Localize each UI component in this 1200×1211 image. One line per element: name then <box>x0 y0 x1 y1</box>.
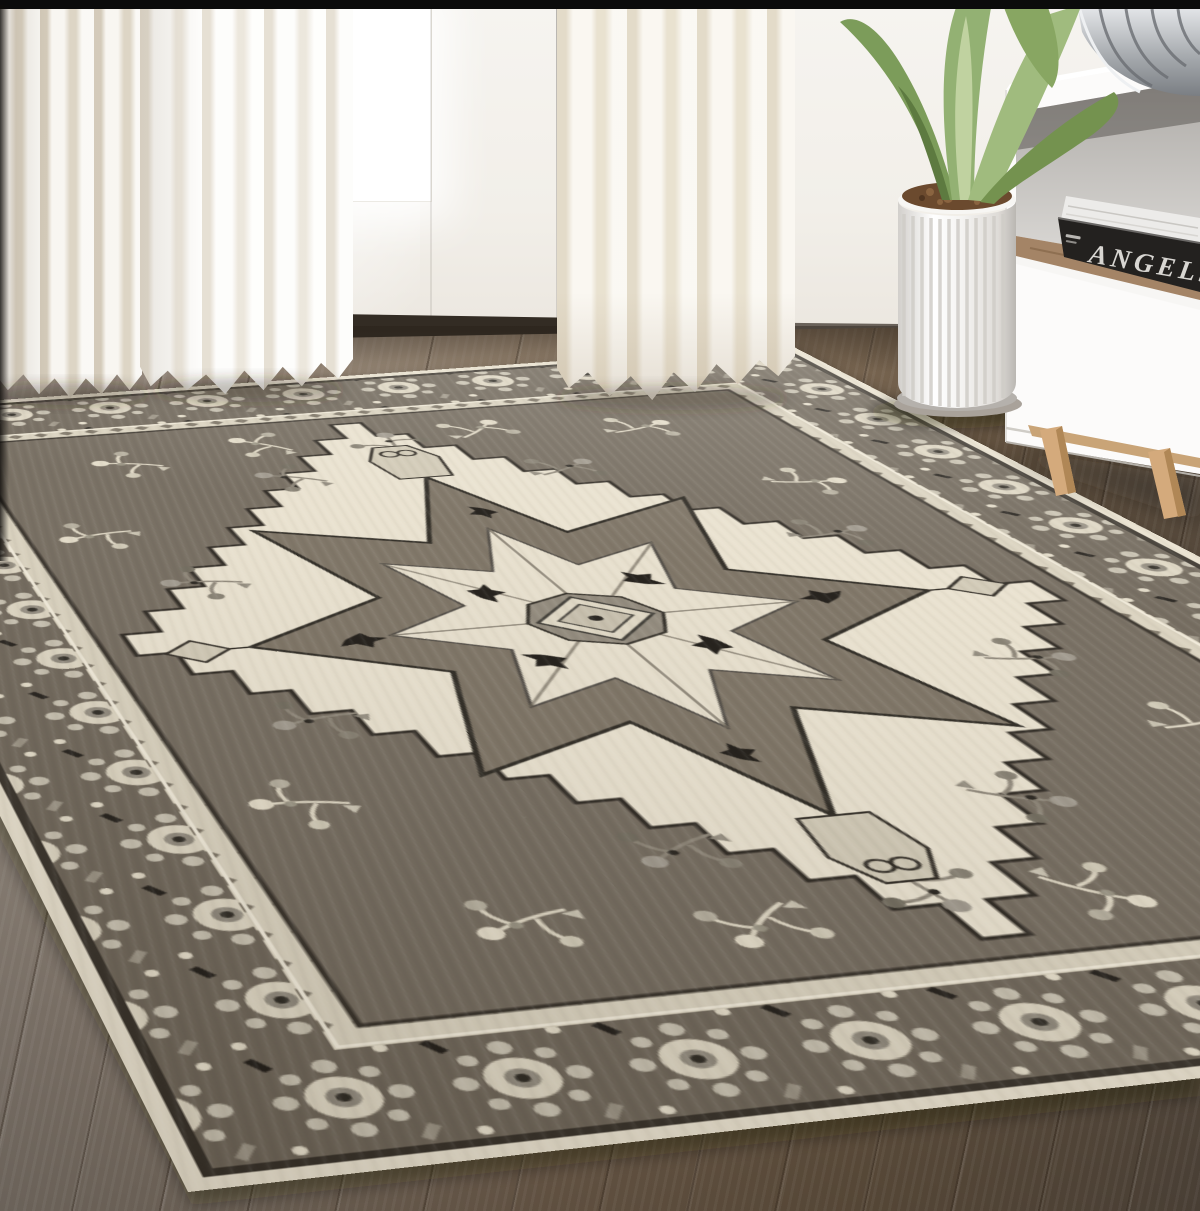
planter <box>897 182 1017 411</box>
left-edge-shade <box>0 5 9 561</box>
top-frame-bar <box>0 0 1200 9</box>
living-room-rug-photo: ANGELS <box>0 0 1200 1211</box>
